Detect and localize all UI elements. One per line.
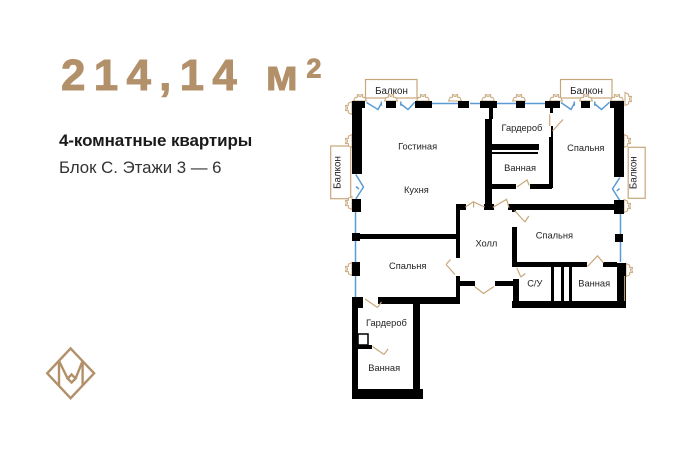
svg-text:Ванная: Ванная	[578, 279, 610, 289]
svg-text:Гардероб: Гардероб	[366, 318, 407, 328]
svg-text:Ванная: Ванная	[504, 163, 536, 173]
svg-text:Гостиная: Гостиная	[398, 142, 437, 152]
svg-text:Балкон: Балкон	[629, 156, 640, 189]
svg-text:Спальня: Спальня	[536, 231, 573, 241]
svg-text:Балкон: Балкон	[570, 86, 603, 97]
svg-text:Спальня: Спальня	[389, 261, 426, 271]
svg-text:Холл: Холл	[475, 238, 497, 248]
svg-text:Балкон: Балкон	[333, 156, 344, 189]
svg-text:Ванная: Ванная	[368, 363, 400, 373]
svg-text:Гардероб: Гардероб	[501, 123, 542, 133]
svg-text:С/У: С/У	[527, 278, 542, 288]
svg-text:Балкон: Балкон	[375, 86, 408, 97]
svg-text:Спальня: Спальня	[567, 143, 604, 153]
svg-text:Кухня: Кухня	[404, 185, 429, 195]
